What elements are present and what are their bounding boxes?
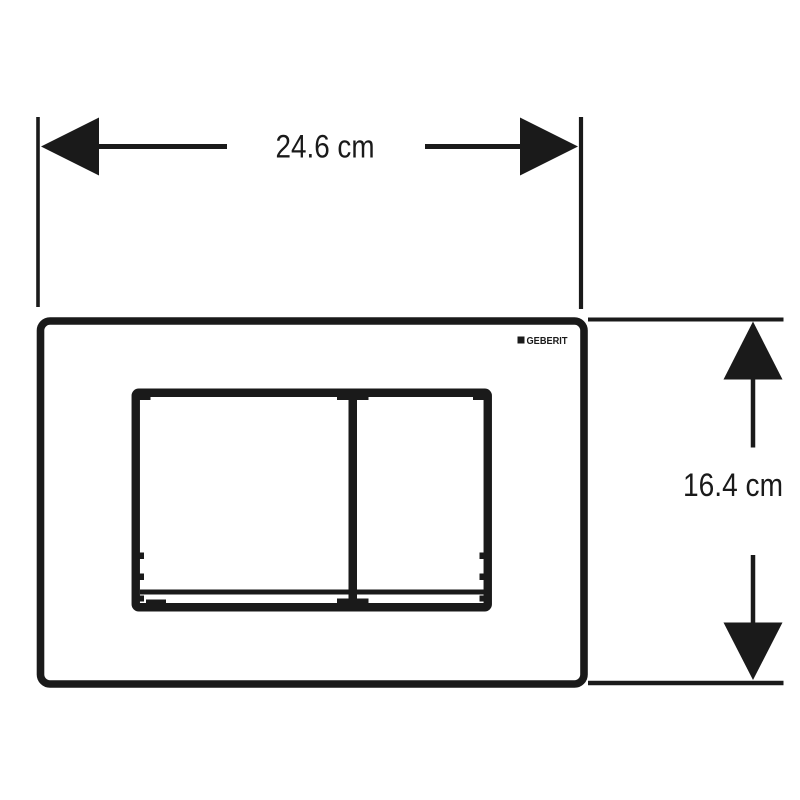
svg-text:24.6 cm: 24.6 cm xyxy=(276,129,375,165)
svg-text:GEBERIT: GEBERIT xyxy=(527,335,569,347)
svg-text:16.4 cm: 16.4 cm xyxy=(683,467,783,503)
